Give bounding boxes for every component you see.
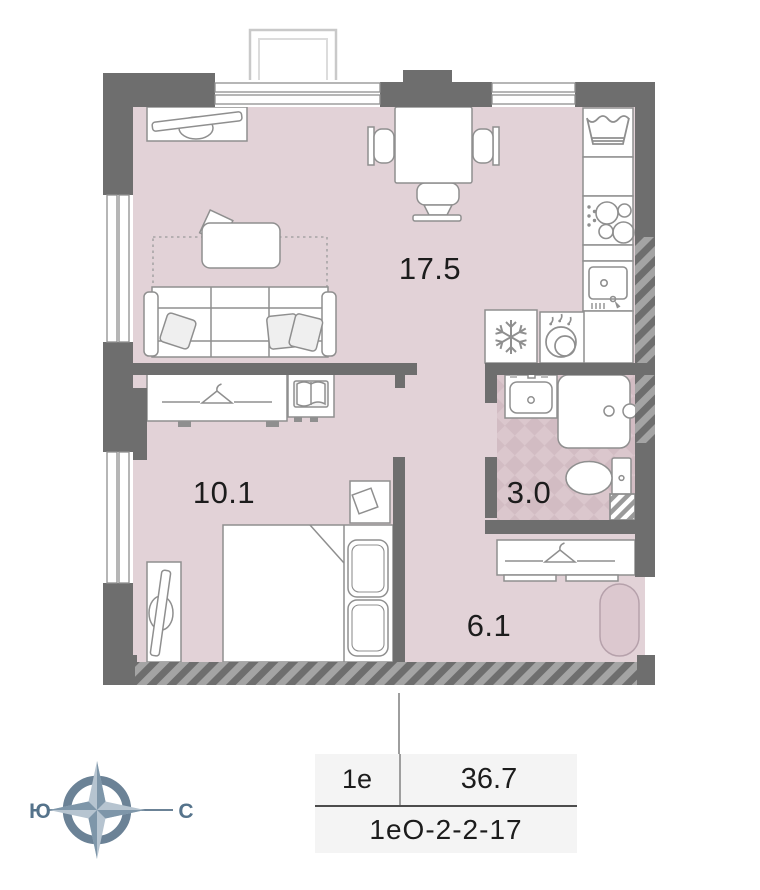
nightstand <box>350 481 390 523</box>
wall-left-pier <box>133 388 147 460</box>
wall-living-bedroom <box>133 363 417 375</box>
wardrobe-door-track <box>504 575 556 581</box>
chair-back <box>413 215 461 221</box>
pillow <box>348 600 388 656</box>
kitchen-cabinet <box>583 311 633 363</box>
wardrobe <box>147 373 287 421</box>
wall-right <box>635 82 655 237</box>
sofa <box>144 287 336 357</box>
shaft-hatch <box>610 494 635 520</box>
living-room-area-label: 17.5 <box>399 251 461 286</box>
toilet-icon <box>566 458 631 498</box>
wall-bathroom-left <box>485 375 497 403</box>
bathroom-area-label: 3.0 <box>507 475 552 510</box>
chair-seat <box>417 183 459 205</box>
tv-console <box>147 107 247 141</box>
wall-right-corner <box>637 655 655 685</box>
wall-bathroom-top <box>485 363 655 375</box>
chair-back <box>493 127 499 165</box>
chair-seat <box>374 129 394 163</box>
compass-north-label: С <box>178 800 193 823</box>
dining-table <box>395 107 472 183</box>
plan-type-cell: 1е <box>315 754 401 805</box>
window-left-2 <box>103 452 133 583</box>
total-area-cell: 36.7 <box>401 754 577 805</box>
wall-bathroom-left <box>485 457 497 518</box>
hallway-area-label: 6.1 <box>467 608 512 643</box>
double-bed <box>223 525 393 662</box>
compass-star-shading <box>49 761 145 859</box>
sofa-armrest <box>322 292 336 356</box>
unit-info-table: 1е 36.7 1еО-2-2-17 <box>315 754 577 853</box>
floor-mat <box>600 584 639 656</box>
wall-left <box>103 342 133 452</box>
wall-bathroom-bottom <box>485 520 635 534</box>
hall-wardrobe <box>497 540 635 575</box>
compass-south-label: Ю <box>29 800 51 823</box>
wardrobe-door-track <box>566 575 618 581</box>
compass-rose-icon: Ю С <box>29 761 193 859</box>
tv-stand <box>147 562 181 662</box>
wall-top-pier <box>403 70 452 107</box>
kitchen-cabinet <box>583 157 633 196</box>
window-top-1 <box>215 80 380 107</box>
wall-bottom-hatched <box>135 662 637 685</box>
window-left-1 <box>103 195 133 342</box>
unit-code-cell: 1еО-2-2-17 <box>315 807 577 853</box>
kitchen-cabinet <box>583 245 633 261</box>
wall-right <box>635 443 655 577</box>
chair-base <box>424 205 452 215</box>
window-top-2 <box>492 80 575 107</box>
wall-stub <box>395 375 405 388</box>
chair-back <box>368 127 374 165</box>
pillow <box>348 540 388 597</box>
book-icon <box>294 381 328 407</box>
balcony-outline <box>250 30 336 86</box>
bedroom-area-label: 10.1 <box>193 475 255 510</box>
wall-bedroom-hall <box>393 457 405 662</box>
floor-plan-page: 17.5 10.1 3.0 6.1 Ю С 1е 36.7 1еО-2-2-17 <box>0 0 760 890</box>
unit-info-row-top: 1е 36.7 <box>315 754 577 805</box>
wall-right-hatched <box>635 237 655 443</box>
chair-seat <box>473 129 493 163</box>
sofa-armrest <box>144 292 158 356</box>
wall-left <box>103 73 133 195</box>
wall-left-corner <box>103 655 137 685</box>
